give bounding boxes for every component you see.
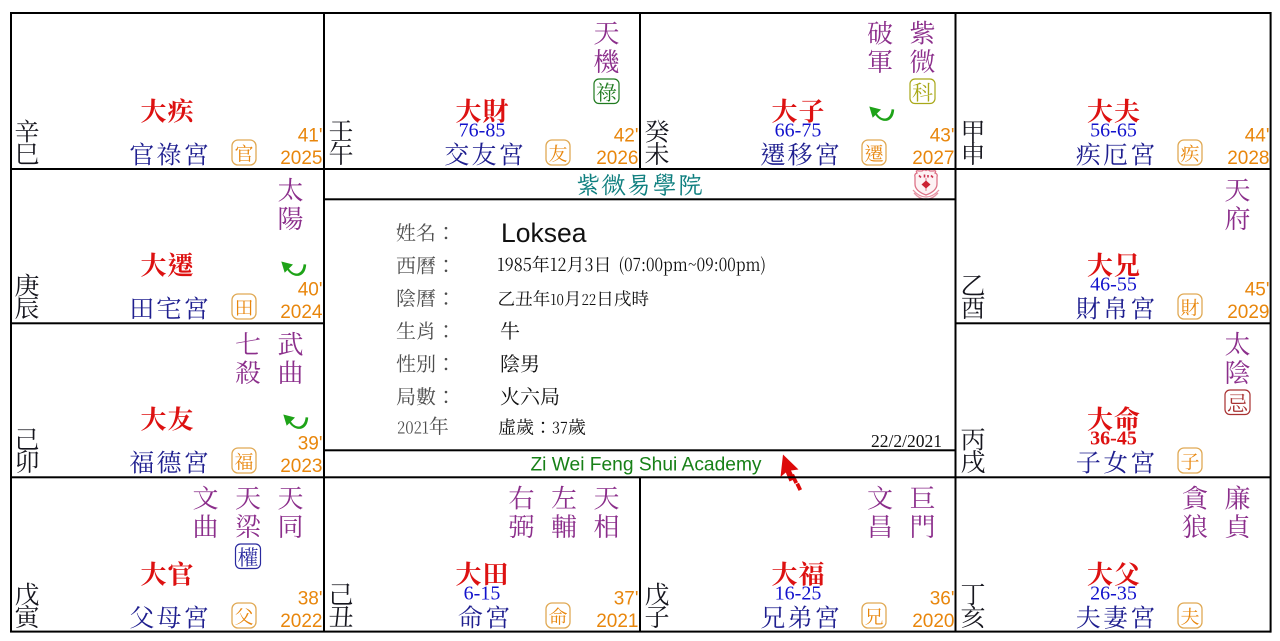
svg-text:2025: 2025: [280, 148, 322, 169]
svg-text:Zi Wei Feng Shui Academy: Zi Wei Feng Shui Academy: [530, 455, 761, 476]
svg-text:36': 36': [930, 589, 955, 610]
svg-text:26-35: 26-35: [1090, 583, 1137, 605]
svg-text:38': 38': [298, 589, 323, 610]
svg-text:6-15: 6-15: [464, 583, 501, 605]
svg-text:2029: 2029: [1227, 302, 1269, 323]
svg-text:2026: 2026: [596, 148, 638, 169]
svg-text:2028: 2028: [1227, 148, 1269, 169]
svg-text:22/2/2021: 22/2/2021: [871, 431, 942, 451]
svg-text:44': 44': [1245, 126, 1270, 147]
svg-text:76-85: 76-85: [459, 120, 506, 142]
svg-text:2020: 2020: [912, 611, 954, 632]
svg-text:42': 42': [614, 126, 639, 147]
svg-text:66-75: 66-75: [775, 120, 822, 142]
svg-text:2021: 2021: [596, 611, 638, 632]
svg-text:2027: 2027: [912, 148, 954, 169]
svg-text:2024: 2024: [280, 302, 323, 323]
svg-text:41': 41': [298, 126, 323, 147]
svg-text:16-25: 16-25: [775, 583, 822, 605]
svg-text:46-55: 46-55: [1090, 274, 1137, 296]
svg-text:2022: 2022: [280, 611, 322, 632]
svg-text:39': 39': [298, 434, 323, 455]
svg-text:56-65: 56-65: [1090, 120, 1137, 142]
svg-text:40': 40': [298, 280, 323, 301]
svg-text:Loksea: Loksea: [501, 218, 587, 248]
svg-text:2023: 2023: [280, 456, 322, 477]
svg-text:36-45: 36-45: [1090, 428, 1137, 450]
svg-text:37': 37': [614, 589, 639, 610]
svg-text:43': 43': [930, 126, 955, 147]
svg-text:45': 45': [1245, 280, 1270, 301]
